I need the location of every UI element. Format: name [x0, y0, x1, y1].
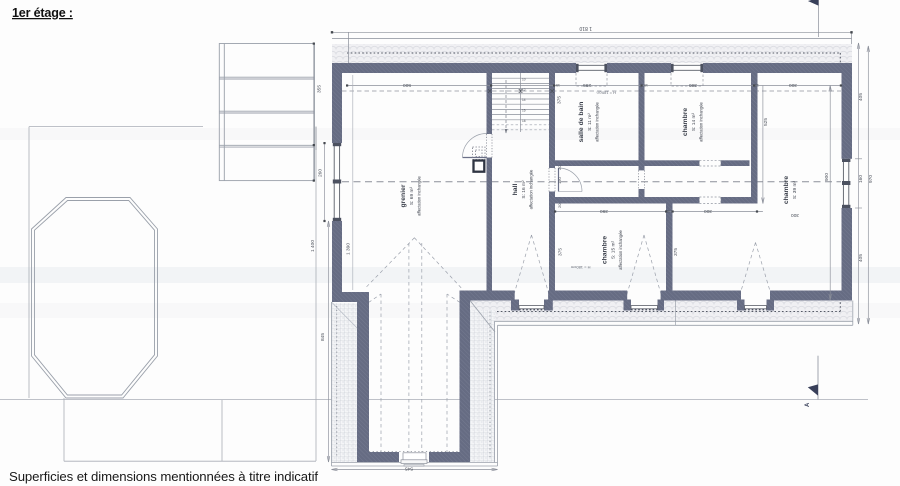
svg-text:S: 69 m²: S: 69 m²: [409, 187, 415, 206]
svg-text:Superficies et dimensions ment: Superficies et dimensions mentionnées à …: [9, 469, 318, 484]
svg-text:affectation inchangée: affectation inchangée: [529, 169, 534, 209]
svg-text:190: 190: [557, 177, 562, 184]
svg-text:970: 970: [868, 175, 874, 183]
svg-text:S: 14 m²: S: 14 m²: [691, 113, 697, 132]
svg-text:295: 295: [583, 82, 591, 88]
svg-text:H = 180cm: H = 180cm: [570, 265, 590, 270]
svg-text:300: 300: [789, 82, 797, 88]
svg-text:1 810: 1 810: [579, 25, 592, 31]
svg-text:300: 300: [704, 208, 712, 214]
svg-text:15: 15: [556, 83, 560, 87]
svg-text:405: 405: [858, 93, 864, 101]
svg-text:390: 390: [600, 208, 608, 214]
svg-text:1 400: 1 400: [310, 240, 316, 252]
svg-text:500: 500: [403, 82, 411, 88]
svg-text:380: 380: [689, 82, 697, 88]
svg-text:14: 14: [522, 98, 526, 102]
svg-text:355: 355: [317, 85, 323, 93]
svg-text:15: 15: [666, 209, 670, 213]
svg-text:375: 375: [673, 248, 679, 256]
svg-text:1er étage :: 1er étage :: [12, 6, 73, 20]
svg-text:545: 545: [405, 466, 413, 472]
svg-text:hall: hall: [512, 184, 519, 196]
svg-text:160: 160: [858, 175, 864, 183]
svg-text:375: 375: [557, 96, 563, 104]
svg-text:affectation inchangée: affectation inchangée: [699, 101, 704, 141]
svg-text:S: 39 m²: S: 39 m²: [792, 181, 798, 200]
svg-text:525: 525: [763, 118, 769, 126]
svg-text:15: 15: [755, 83, 759, 87]
svg-text:300: 300: [791, 212, 799, 218]
svg-text:salle de bain: salle de bain: [578, 102, 585, 143]
svg-text:H = 180cm: H = 180cm: [596, 91, 616, 96]
svg-text:18: 18: [522, 119, 526, 123]
svg-text:20: 20: [557, 165, 562, 170]
svg-text:affectation inchangée: affectation inchangée: [417, 175, 422, 215]
svg-text:260: 260: [318, 169, 324, 177]
svg-text:chambre: chambre: [783, 176, 790, 205]
svg-text:16: 16: [522, 109, 526, 113]
svg-text:10: 10: [522, 78, 526, 82]
svg-text:405: 405: [858, 254, 864, 262]
svg-text:900: 900: [824, 173, 830, 181]
svg-text:S: 16 m²: S: 16 m²: [521, 180, 527, 199]
svg-text:S: 11 m²: S: 11 m²: [587, 113, 593, 131]
svg-text:375: 375: [558, 248, 564, 256]
svg-text:grenier: grenier: [400, 184, 407, 207]
svg-text:chambre: chambre: [682, 108, 689, 137]
svg-text:15: 15: [644, 83, 648, 87]
svg-text:affectation inchangée: affectation inchangée: [595, 101, 600, 141]
svg-text:chambre: chambre: [602, 236, 609, 265]
svg-text:S: 15 m²: S: 15 m²: [611, 241, 617, 260]
svg-text:affectation inchangée: affectation inchangée: [618, 229, 623, 269]
svg-text:20: 20: [557, 203, 562, 208]
svg-text:A: A: [805, 402, 811, 407]
svg-text:1 390: 1 390: [346, 243, 352, 255]
svg-text:845: 845: [320, 333, 326, 341]
svg-text:12: 12: [522, 88, 526, 92]
